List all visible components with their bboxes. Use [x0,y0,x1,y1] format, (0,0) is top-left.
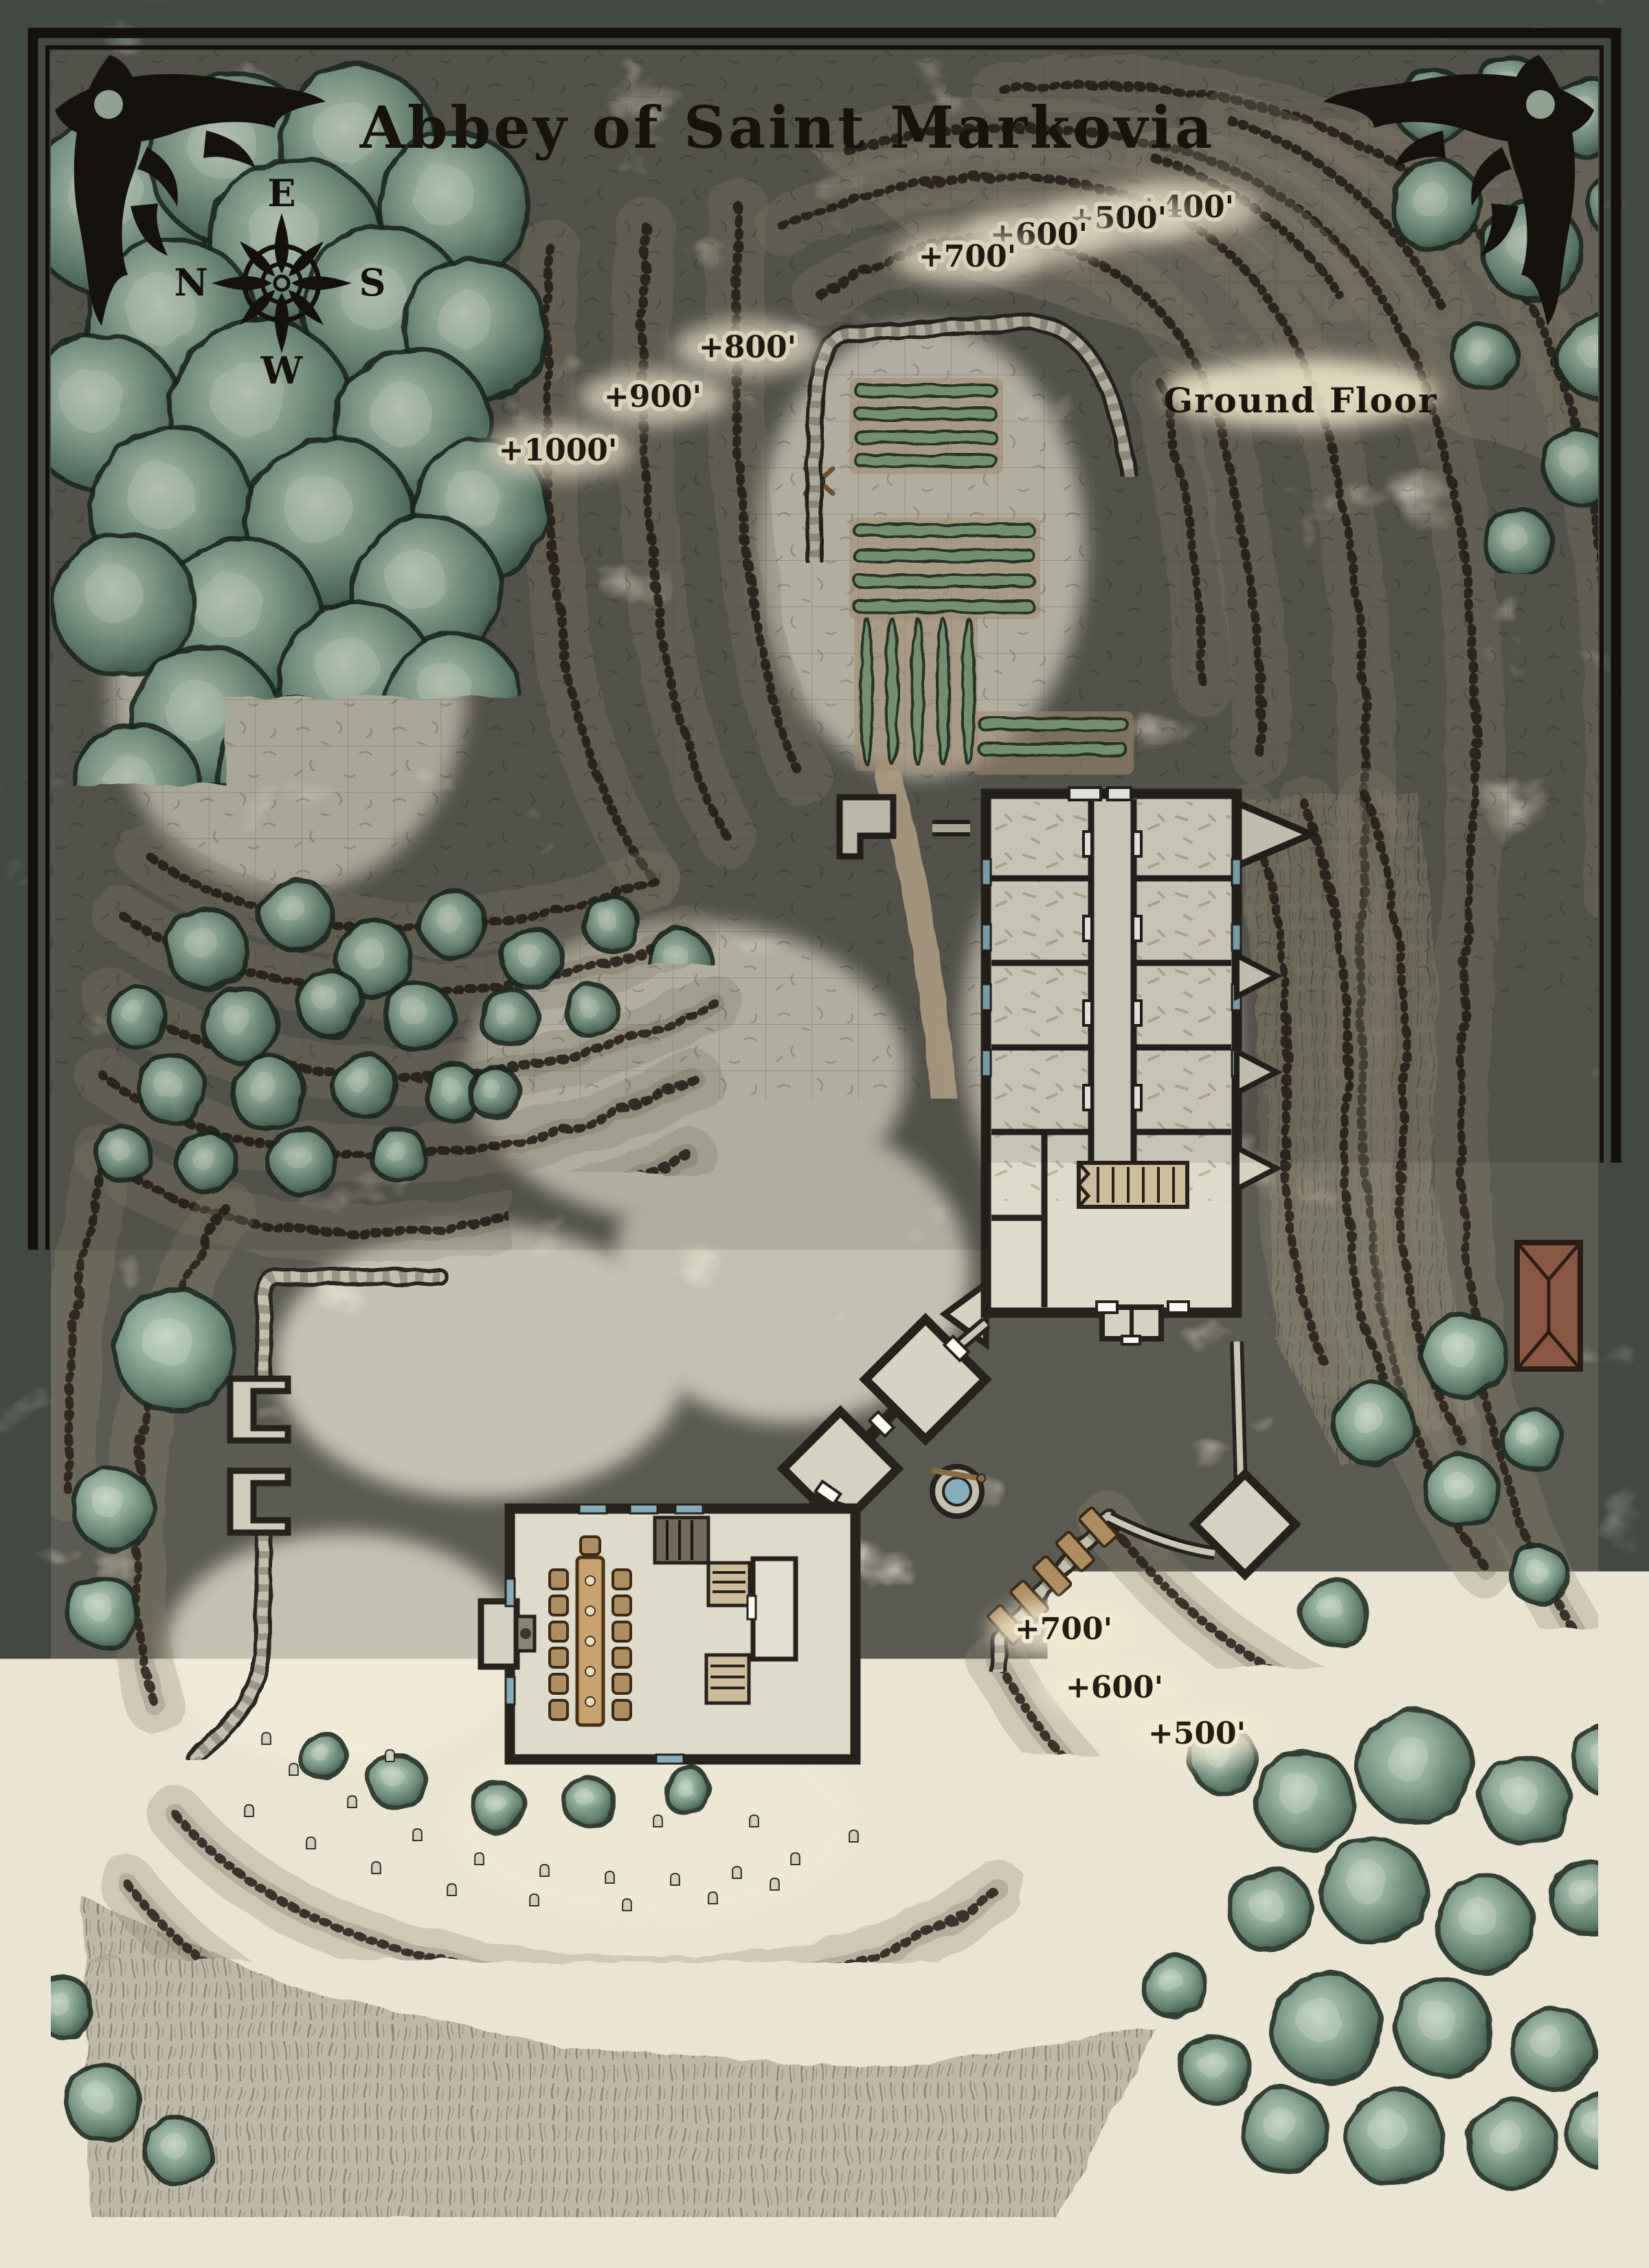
compass-north-label: N [174,260,207,304]
abbey-map: +400'+500'+600'+700'+800'+900'+1000'+700… [0,0,1649,2268]
floor-label-group: Ground Floor [1163,359,1438,427]
floor-label: Ground Floor [1164,380,1438,421]
abbey-map-page: +400'+500'+600'+700'+800'+900'+1000'+700… [0,0,1649,2268]
map-field: +400'+500'+600'+700'+800'+900'+1000'+700… [0,0,1649,2268]
compass-east-label: E [267,171,295,215]
compass-south-label: S [359,260,386,304]
paper-grain [0,0,1649,2268]
cartographer-signature: mS [152,2185,208,2222]
scale-note: One square = 10 feet [1146,2187,1444,2219]
compass-west-label: W [260,348,304,392]
map-title: Abbey of Saint Markovia [359,93,1215,162]
